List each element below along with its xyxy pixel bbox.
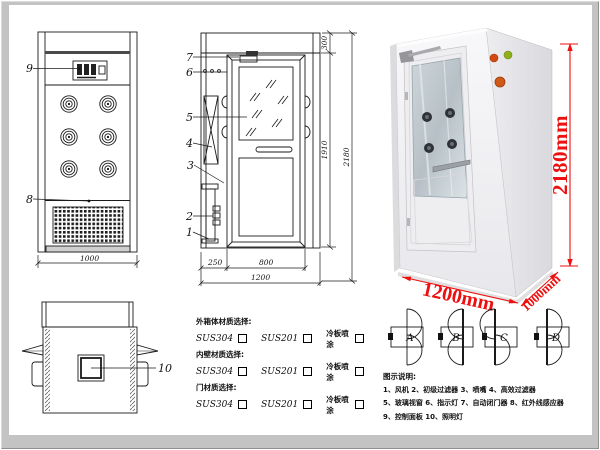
- product-photo: [390, 28, 554, 304]
- material-checkbox[interactable]: [303, 400, 312, 409]
- callout-5: 5: [186, 111, 193, 124]
- inner-wall-material-title: 内壁材质选择:: [196, 347, 378, 363]
- right-hinge: [137, 345, 158, 355]
- callout-6: 6: [186, 66, 193, 79]
- door-option-a: A: [388, 309, 423, 365]
- svg-text:300: 300: [320, 36, 329, 51]
- material-option-label: SUS304: [196, 367, 233, 377]
- svg-text:B: B: [451, 333, 459, 344]
- material-checkbox[interactable]: [303, 334, 312, 343]
- nozzles: [61, 96, 116, 177]
- legend: 图示说明: 1、风机 2、初级过滤器 3、喷嘴 4、高效过滤器 5、玻璃视窗 6…: [383, 370, 595, 424]
- callout-1: 1: [186, 226, 193, 239]
- material-checkbox[interactable]: [238, 367, 247, 376]
- air-grille: [53, 207, 123, 243]
- door-option-d: D: [534, 309, 569, 365]
- callout-8: 8: [26, 193, 33, 206]
- svg-text:1910: 1910: [320, 140, 329, 159]
- legend-line: 5、玻璃视窗 6、指示灯 7、自动闭门器 8、红外线感应器: [383, 397, 595, 411]
- callout-10: 10: [158, 362, 172, 375]
- photo-height-label: 2180mm: [548, 115, 572, 195]
- door: [222, 51, 310, 247]
- side-view: 7 6 5 4 3 2 1: [185, 31, 357, 287]
- material-checkbox[interactable]: [238, 400, 247, 409]
- door-closer: [240, 56, 257, 62]
- left-hinge: [22, 345, 43, 355]
- right-handle: [137, 362, 148, 386]
- svg-text:C: C: [500, 333, 508, 344]
- material-option-label: 冷板喷涂: [326, 361, 350, 383]
- plan-view: 10: [22, 302, 172, 413]
- callout-3: 3: [187, 159, 194, 172]
- left-handle: [32, 362, 43, 386]
- indicator-light-green: [504, 51, 512, 59]
- start-button[interactable]: [495, 77, 505, 87]
- outer-body-material-title: 外箱体材质选择:: [196, 314, 378, 330]
- outer-body-material-options: SUS304 SUS201 冷板喷涂: [196, 330, 378, 347]
- door-option-b: B: [438, 309, 473, 365]
- inner-wall-material-options: SUS304 SUS201 冷板喷涂: [196, 363, 378, 380]
- material-option-label: SUS201: [261, 400, 298, 410]
- legend-title: 图示说明:: [383, 370, 595, 384]
- door-material-title: 门材质选择:: [196, 380, 378, 396]
- svg-text:250: 250: [207, 258, 223, 267]
- fan-column: [206, 189, 215, 241]
- svg-text:2180: 2180: [342, 147, 351, 167]
- width-dims: 250 800 1200: [199, 249, 323, 286]
- door-glass: [239, 67, 293, 140]
- door-option-c: C: [480, 309, 517, 365]
- callout-7: 7: [186, 51, 193, 64]
- glass-hatch: [246, 80, 288, 136]
- svg-text:1200: 1200: [251, 273, 270, 282]
- material-selection: 外箱体材质选择: SUS304 SUS201 冷板喷涂 内壁材质选择: SUS3…: [196, 314, 378, 413]
- material-checkbox[interactable]: [238, 334, 247, 343]
- material-option-label: SUS304: [196, 334, 233, 344]
- svg-text:D: D: [551, 333, 560, 344]
- indicator-light-red: [490, 54, 498, 62]
- door-material-options: SUS304 SUS201 冷板喷涂: [196, 396, 378, 413]
- material-checkbox[interactable]: [303, 367, 312, 376]
- material-checkbox[interactable]: [355, 367, 364, 376]
- side-internals: [202, 70, 220, 243]
- air-shower-spec-sheet: 9 8 1000: [0, 0, 600, 450]
- height-dims: 300 1910 2180: [320, 31, 357, 284]
- material-option-label: SUS201: [261, 334, 298, 344]
- legend-line: 1、风机 2、初级过滤器 3、喷嘴 4、高效过滤器: [383, 384, 595, 398]
- callout-9: 9: [26, 62, 33, 75]
- material-checkbox[interactable]: [355, 400, 364, 409]
- svg-text:A: A: [405, 333, 413, 344]
- svg-text:800: 800: [259, 258, 274, 267]
- front-width-dim: 1000: [36, 254, 140, 268]
- material-checkbox[interactable]: [355, 334, 364, 343]
- material-option-label: SUS201: [261, 367, 298, 377]
- callout-2: 2: [185, 210, 193, 223]
- legend-line: 9、控制面板 10、照明灯: [383, 411, 595, 425]
- callout-4: 4: [185, 137, 193, 150]
- top-band: [45, 51, 130, 54]
- control-panel: [73, 61, 107, 80]
- front-view: 9 8 1000: [26, 32, 140, 268]
- material-option-label: 冷板喷涂: [326, 394, 350, 416]
- door-handle: [256, 147, 292, 152]
- material-option-label: 冷板喷涂: [326, 328, 350, 350]
- svg-text:1000: 1000: [80, 254, 99, 263]
- material-option-label: SUS304: [196, 400, 233, 410]
